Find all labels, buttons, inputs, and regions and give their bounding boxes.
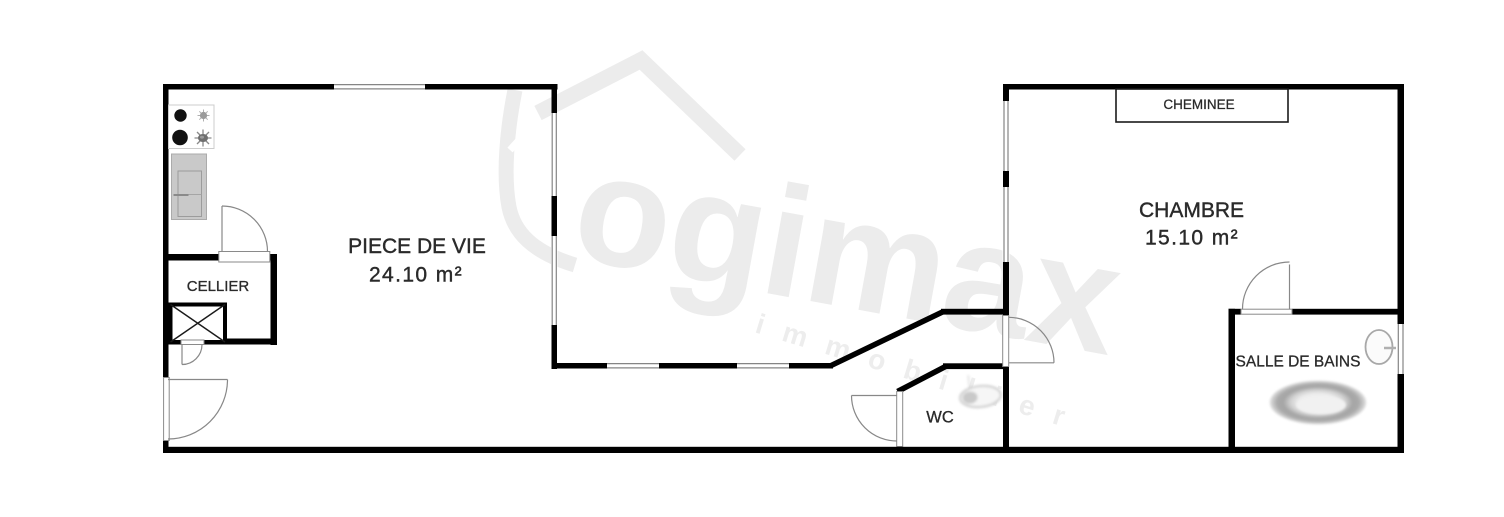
svg-text:15.10 m²: 15.10 m² <box>1145 227 1239 250</box>
svg-text:WC: WC <box>926 409 954 427</box>
svg-text:SALLE DE BAINS: SALLE DE BAINS <box>1236 354 1361 371</box>
svg-text:CELLIER: CELLIER <box>187 278 250 295</box>
svg-text:CHEMINEE: CHEMINEE <box>1163 97 1234 112</box>
svg-text:PIECE DE VIE: PIECE DE VIE <box>348 235 486 258</box>
svg-text:24.10 m²: 24.10 m² <box>369 264 463 287</box>
svg-text:CHAMBRE: CHAMBRE <box>1139 199 1244 222</box>
